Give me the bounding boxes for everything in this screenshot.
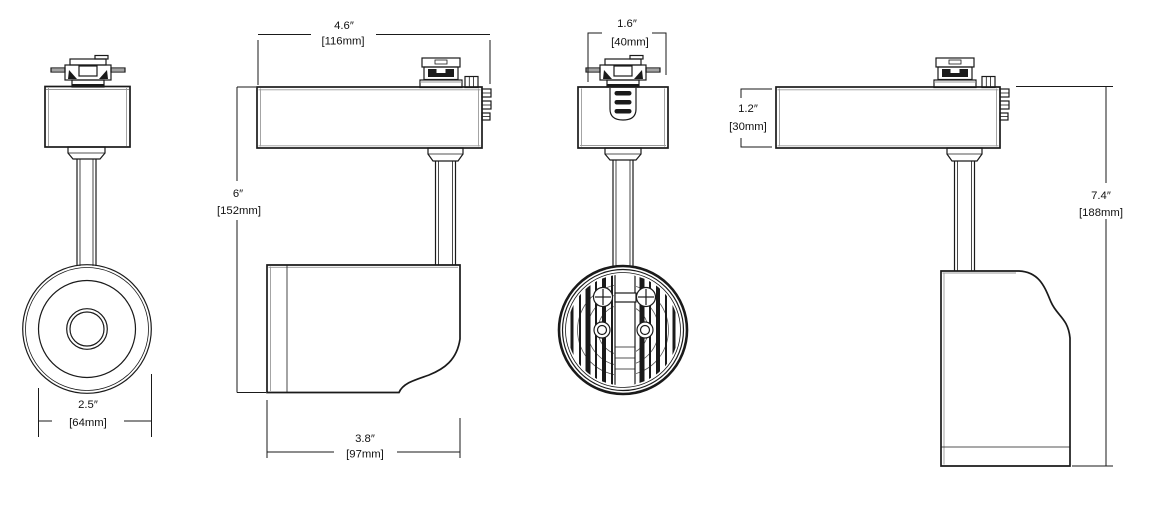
dim-housing-length-metric: [116mm] (321, 36, 364, 48)
dim-housing-height-inches: 1.2″ (738, 103, 758, 115)
stem (613, 160, 633, 267)
dim-adapter-width-inches: 1.6″ (617, 18, 637, 30)
dim-housing-length: 4.6″ [116mm] (258, 20, 490, 85)
phillips-screw (637, 288, 656, 307)
dim-housing-height: 1.2″ [30mm] (729, 89, 772, 147)
dim-fixture-height-inches: 6″ (233, 188, 243, 200)
stem (436, 161, 456, 265)
dim-lens-diameter: 2.5″ [64mm] (39, 374, 152, 437)
dim-overall-height-metric: [188mm] (1079, 207, 1123, 219)
vent-slot (615, 100, 632, 105)
dim-housing-height-metric: [30mm] (729, 121, 767, 133)
adjust-knob (465, 77, 478, 88)
drawing-canvas: 2.5″ [64mm] 4.6″ [116mm] 6″ [152mm] 3.8″… (0, 0, 1151, 506)
dim-housing-length-inches: 4.6″ (334, 20, 354, 32)
gear-housing (776, 87, 1000, 148)
yoke-collar (428, 148, 463, 161)
stem (955, 161, 975, 271)
track-adapter (934, 58, 976, 88)
adjust-knob (982, 77, 995, 88)
dimension-drawing: 2.5″ [64mm] 4.6″ [116mm] 6″ [152mm] 3.8″… (0, 0, 1151, 506)
vent-slot (615, 91, 632, 96)
dim-overall-height-inches: 7.4″ (1091, 190, 1111, 202)
vent-slot (615, 109, 632, 114)
dim-head-length-inches: 3.8″ (355, 433, 375, 445)
left-side-view (257, 58, 491, 393)
housing-clips (1000, 89, 1009, 120)
track-adapter (51, 56, 125, 88)
stem (77, 159, 96, 266)
dim-lens-diameter-metric: [64mm] (69, 417, 107, 429)
dim-lens-diameter-inches: 2.5″ (78, 399, 98, 411)
heatsink-face (559, 266, 687, 394)
track-adapter (420, 58, 462, 88)
lamp-head (267, 265, 460, 393)
gear-housing (257, 87, 482, 148)
front-view (23, 56, 152, 394)
phillips-screw (594, 288, 613, 307)
mount-hole (637, 322, 653, 338)
lamp-head (941, 271, 1070, 466)
dim-adapter-width-metric: [40mm] (611, 37, 649, 49)
mount-hole (594, 322, 610, 338)
yoke-collar (947, 148, 982, 161)
housing-clips (482, 89, 491, 120)
dim-head-length: 3.8″ [97mm] (267, 400, 460, 461)
dim-fixture-height: 6″ [152mm] (217, 87, 266, 393)
dim-fixture-height-metric: [152mm] (217, 205, 261, 217)
yoke-collar (68, 147, 105, 159)
rear-view (559, 56, 687, 395)
right-side-view (776, 58, 1070, 466)
lens-face (23, 265, 152, 394)
gear-housing-end (578, 87, 668, 148)
yoke-collar (605, 148, 641, 160)
gear-housing-front (45, 87, 130, 148)
center-channel (614, 266, 636, 386)
track-adapter (586, 56, 660, 88)
socket-bracket (615, 293, 636, 302)
dim-head-length-metric: [97mm] (346, 449, 384, 461)
